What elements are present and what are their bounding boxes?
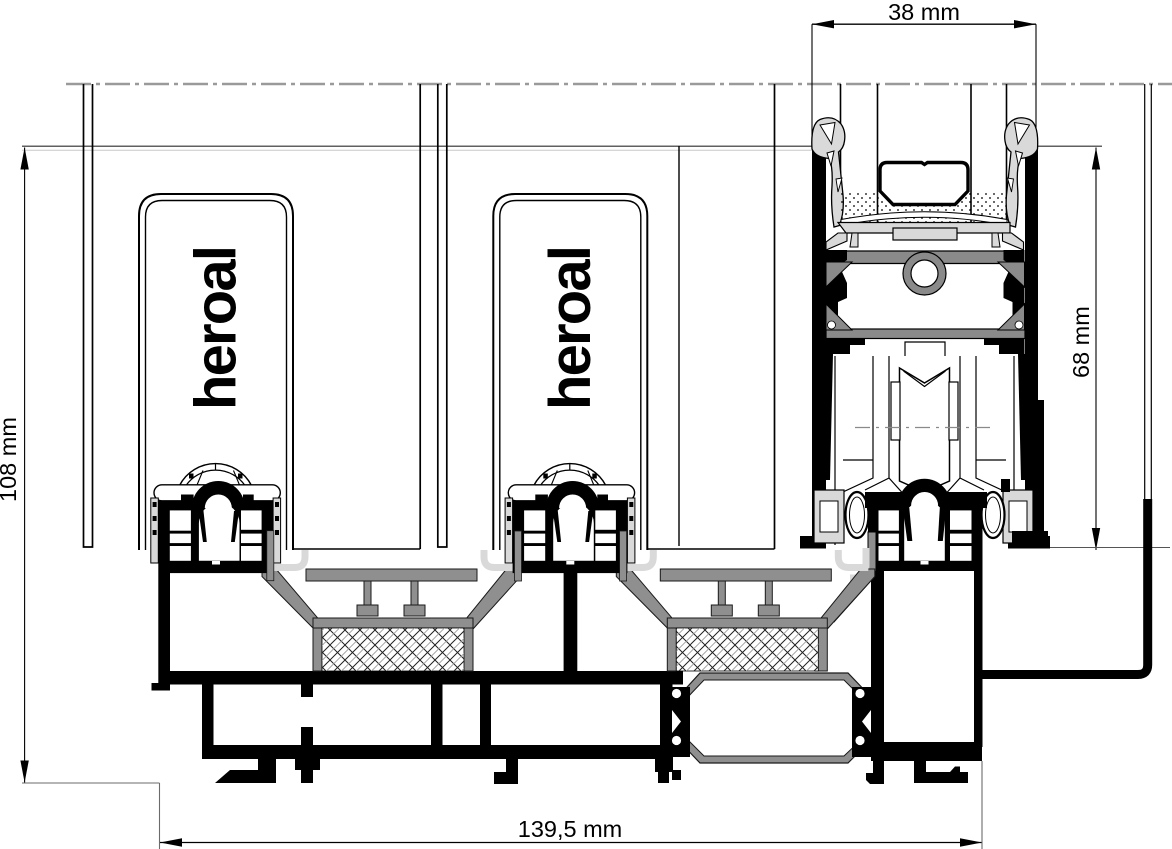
svg-text:108 mm: 108 mm xyxy=(0,417,21,502)
svg-text:68 mm: 68 mm xyxy=(1068,306,1094,378)
svg-text:38 mm: 38 mm xyxy=(888,0,960,25)
svg-text:139,5 mm: 139,5 mm xyxy=(518,816,623,842)
